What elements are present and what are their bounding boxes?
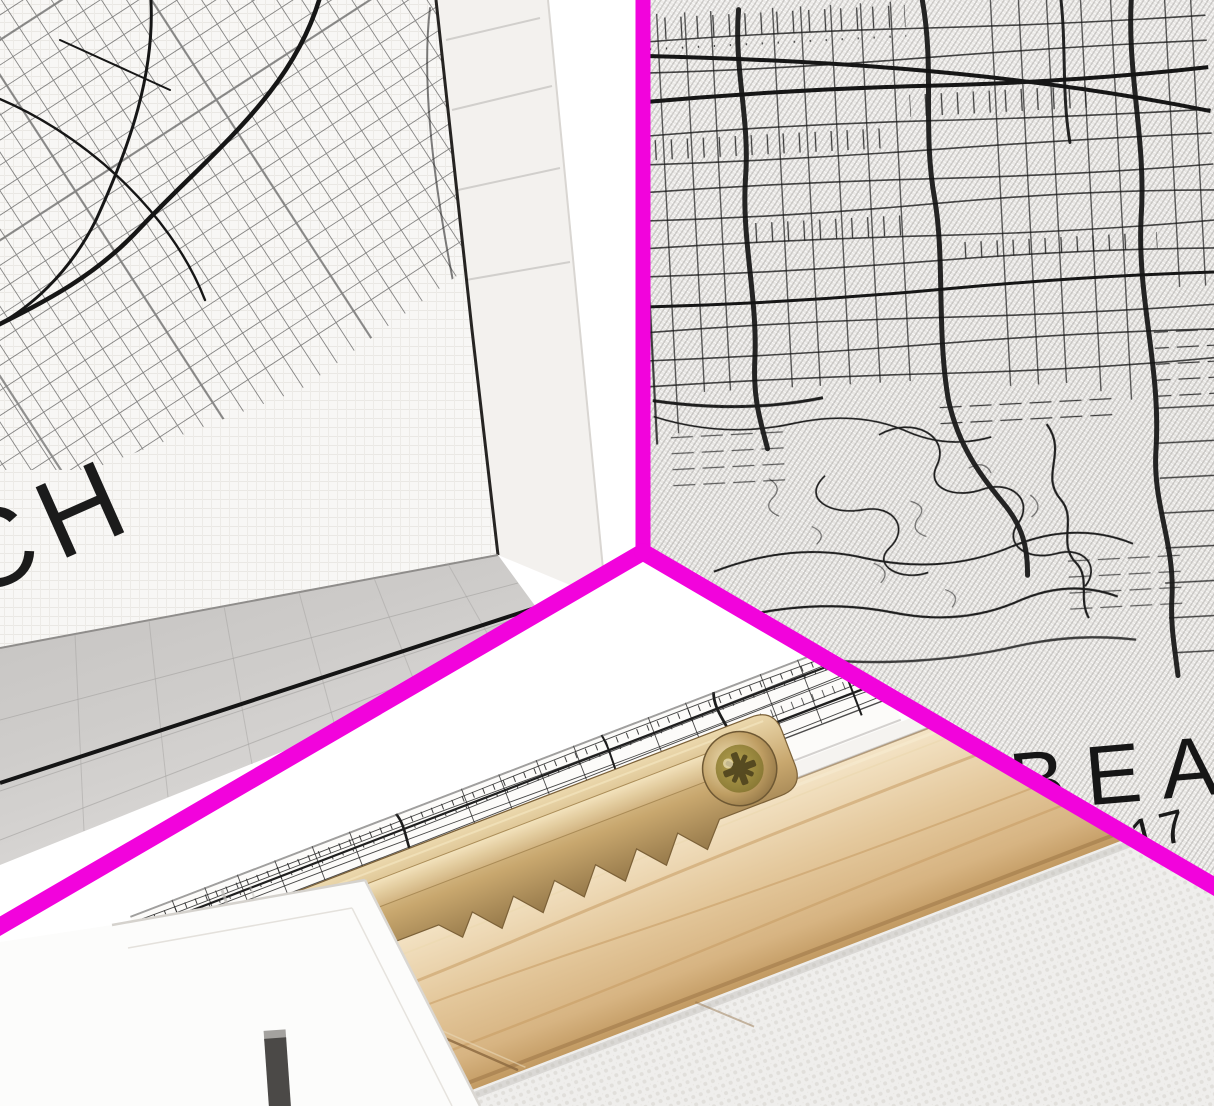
mockup-collage: CH — [0, 0, 1214, 1106]
